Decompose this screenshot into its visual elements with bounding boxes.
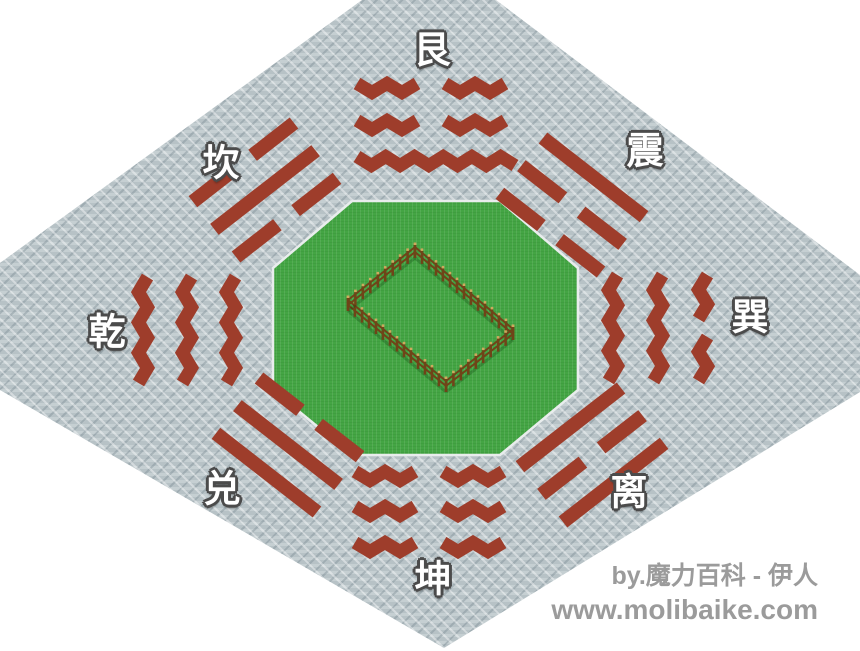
- trigram-label-gen: 艮: [414, 32, 451, 69]
- trigram-tiles-gen: [357, 84, 515, 166]
- trigram-label-xun: 巽: [732, 299, 769, 336]
- wooden-fence: [348, 243, 513, 393]
- trigram-tiles-qian: [139, 277, 236, 383]
- trigram-label-dui: 兑: [204, 471, 241, 508]
- trigram-label-kan: 坎: [203, 145, 240, 182]
- courtyard-border: [273, 201, 578, 455]
- trigram-label-kun: 坤: [415, 561, 452, 598]
- trigram-tiles-xun: [609, 275, 708, 381]
- trigram-label-qian: 乾: [89, 314, 126, 351]
- watermark-site: www.molibaike.com: [551, 592, 818, 627]
- trigram-label-zhen: 震: [627, 133, 664, 170]
- trigram-tiles-zhen: [500, 138, 644, 272]
- trigram-tiles-kun: [355, 472, 503, 552]
- watermark: by.魔力百科 - 伊人 www.molibaike.com: [551, 561, 818, 627]
- trigram-label-li: 离: [611, 474, 648, 511]
- watermark-credit: by.魔力百科 - 伊人: [551, 561, 818, 592]
- game-map: 艮 震 巽 离 坤 兑 乾 坎 by.魔力百科 - 伊人 www.molibai…: [0, 0, 860, 651]
